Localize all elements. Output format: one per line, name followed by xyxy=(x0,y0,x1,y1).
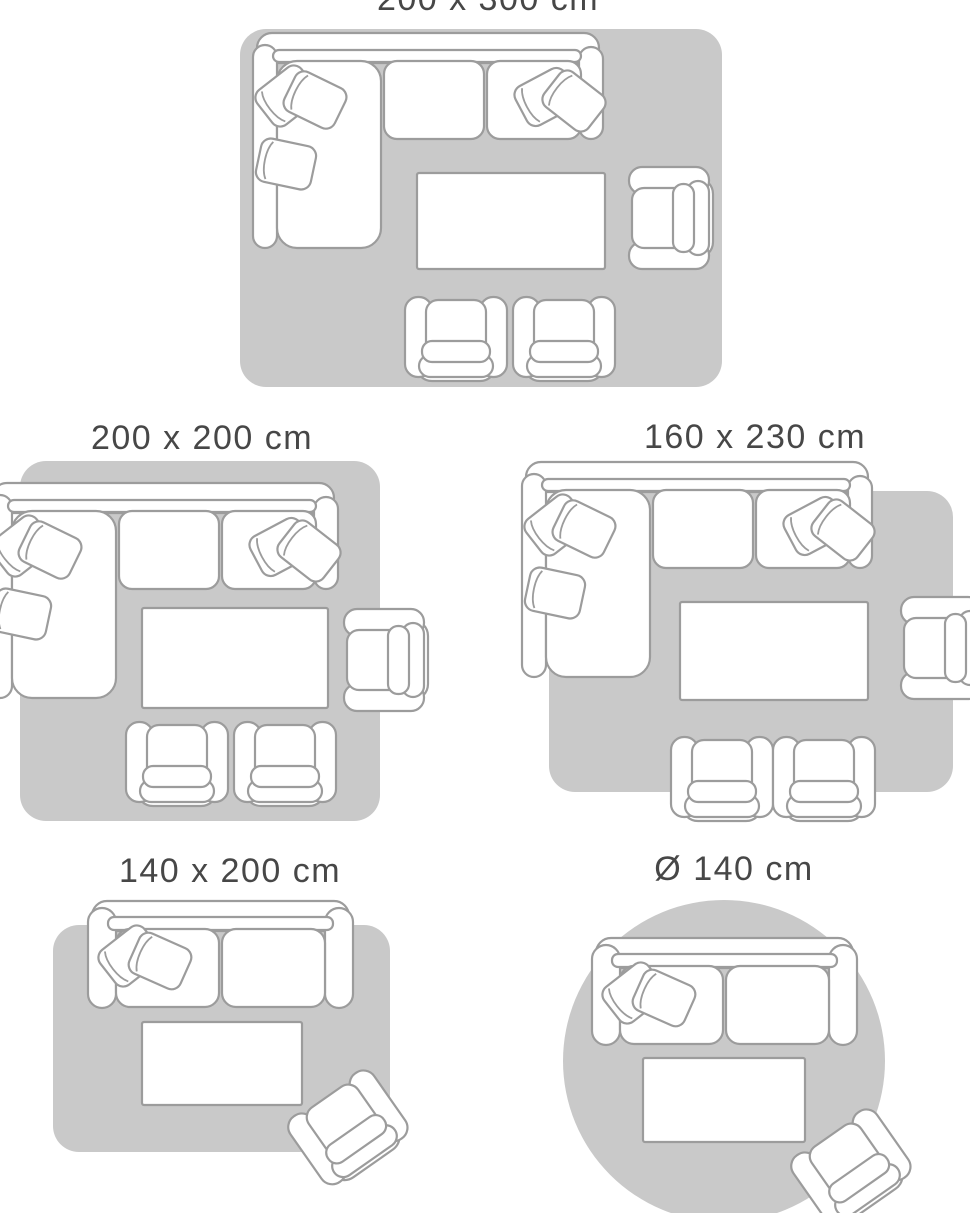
coffee-table xyxy=(643,1058,805,1142)
size-label-diameter-140: Ø 140 cm xyxy=(654,852,813,886)
size-label-160x230: 160 x 230 cm xyxy=(644,420,866,454)
coffee-table xyxy=(680,602,868,700)
size-label-200x200: 200 x 200 cm xyxy=(91,421,313,455)
rug-size-guide: 200 x 300 cm 200 x 200 cm 160 x 230 cm 1… xyxy=(0,0,970,1213)
diagram-160x230 xyxy=(520,462,970,821)
size-label-140x200: 140 x 200 cm xyxy=(119,854,341,888)
coffee-table xyxy=(417,173,605,269)
diagram-diameter-140 xyxy=(563,900,918,1213)
armchair-front xyxy=(773,737,875,821)
armchair-front xyxy=(234,722,336,806)
coffee-table xyxy=(142,608,328,708)
armchair-front xyxy=(513,297,615,381)
coffee-table xyxy=(142,1022,302,1105)
size-label-200x300: 200 x 300 cm xyxy=(377,0,599,16)
armchair-front xyxy=(671,737,773,821)
diagram-200x200 xyxy=(0,461,428,821)
diagram-200x300 xyxy=(240,29,722,387)
armchair-front xyxy=(405,297,507,381)
armchair-front xyxy=(126,722,228,806)
diagram-140x200 xyxy=(53,901,415,1193)
armchair-side xyxy=(344,609,428,711)
diagram-canvas xyxy=(0,0,970,1213)
armchair-side xyxy=(629,167,713,269)
armchair-side xyxy=(901,597,970,699)
